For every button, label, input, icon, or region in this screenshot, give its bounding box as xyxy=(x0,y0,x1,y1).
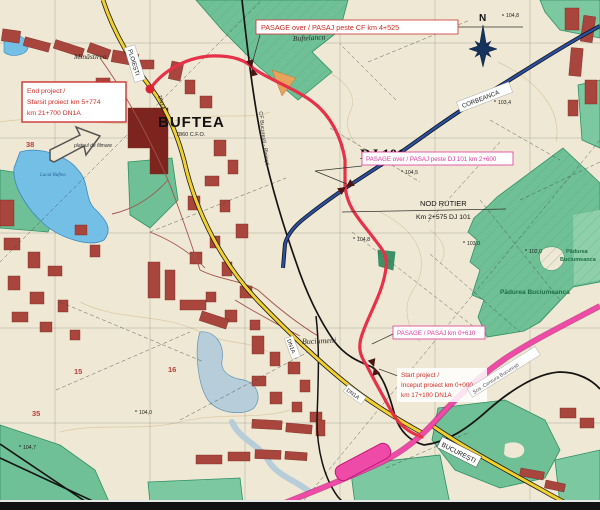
end-project-line1: End project / xyxy=(27,88,65,95)
scan-edge-strip xyxy=(0,500,600,502)
buciumeni-label: Buciumeni xyxy=(302,336,337,346)
svg-text:104,5: 104,5 xyxy=(405,170,418,176)
end-project-label: End project / Sfarsit proiect km 5+774 k… xyxy=(22,82,126,122)
overpass-dj101-label: PASAGE over / PASAJ peste DJ 101 km 2+60… xyxy=(362,152,513,165)
platoul-label: platoul de filmare xyxy=(73,143,112,149)
svg-text:103,4: 103,4 xyxy=(498,100,511,106)
nod-rutier-line2: Km 2+575 DJ 101 xyxy=(416,214,471,221)
scan-edge-bar xyxy=(0,502,600,510)
svg-text:104,8: 104,8 xyxy=(506,13,519,19)
overpass-km0610-text: PASAGE / PASAJ km 0+610 xyxy=(397,330,476,337)
start-project-line1: Start project / xyxy=(401,372,439,379)
start-project-line2: Inceput proiect km 0+000 xyxy=(401,382,473,389)
padurea-main-label: Pădurea Buciumeanca xyxy=(500,289,570,296)
end-project-line2: Sfarsit proiect km 5+774 xyxy=(27,99,101,106)
topographic-map: N PASAGE over / PASAJ peste CF km 4+525 … xyxy=(0,0,600,510)
minastirea-label: Mînăstirea xyxy=(73,52,107,61)
svg-text:16: 16 xyxy=(168,365,176,374)
svg-text:35: 35 xyxy=(32,409,40,418)
compass-n-label: N xyxy=(479,13,486,24)
buftea-sub-label: 7860 C.F.O. xyxy=(176,132,206,138)
end-project-marker xyxy=(146,85,155,94)
svg-text:102,0: 102,0 xyxy=(529,249,542,255)
overpass-cf-label: PASAGE over / PASAJ peste CF km 4+525 xyxy=(256,20,458,34)
svg-text:103,0: 103,0 xyxy=(467,241,480,247)
svg-text:104,0: 104,0 xyxy=(139,410,152,416)
lacul-buftea-label: Lacul Buftea xyxy=(39,173,66,178)
overpass-dj101-text: PASAGE over / PASAJ peste DJ 101 km 2+60… xyxy=(366,156,497,163)
svg-text:Pădurea: Pădurea xyxy=(566,249,589,255)
svg-text:Buciumeanca: Buciumeanca xyxy=(560,257,597,263)
nod-rutier-line1: NOD RUTIER xyxy=(420,199,467,208)
start-project-line3: km 17+100 DN1A xyxy=(401,392,452,399)
svg-text:38: 38 xyxy=(26,140,34,149)
svg-text:104,8: 104,8 xyxy=(357,237,370,243)
svg-text:104,7: 104,7 xyxy=(23,445,36,451)
end-project-line3: km 21+700 DN1A xyxy=(27,110,81,117)
map-canvas: N PASAGE over / PASAJ peste CF km 4+525 … xyxy=(0,0,600,510)
svg-text:15: 15 xyxy=(74,367,82,376)
overpass-km0610-label: PASAGE / PASAJ km 0+610 xyxy=(393,326,485,339)
bufteanca-label: Buftelanca xyxy=(293,32,326,43)
buftea-label: BUFTEA xyxy=(158,114,225,131)
overpass-cf-text: PASAGE over / PASAJ peste CF km 4+525 xyxy=(261,23,399,32)
